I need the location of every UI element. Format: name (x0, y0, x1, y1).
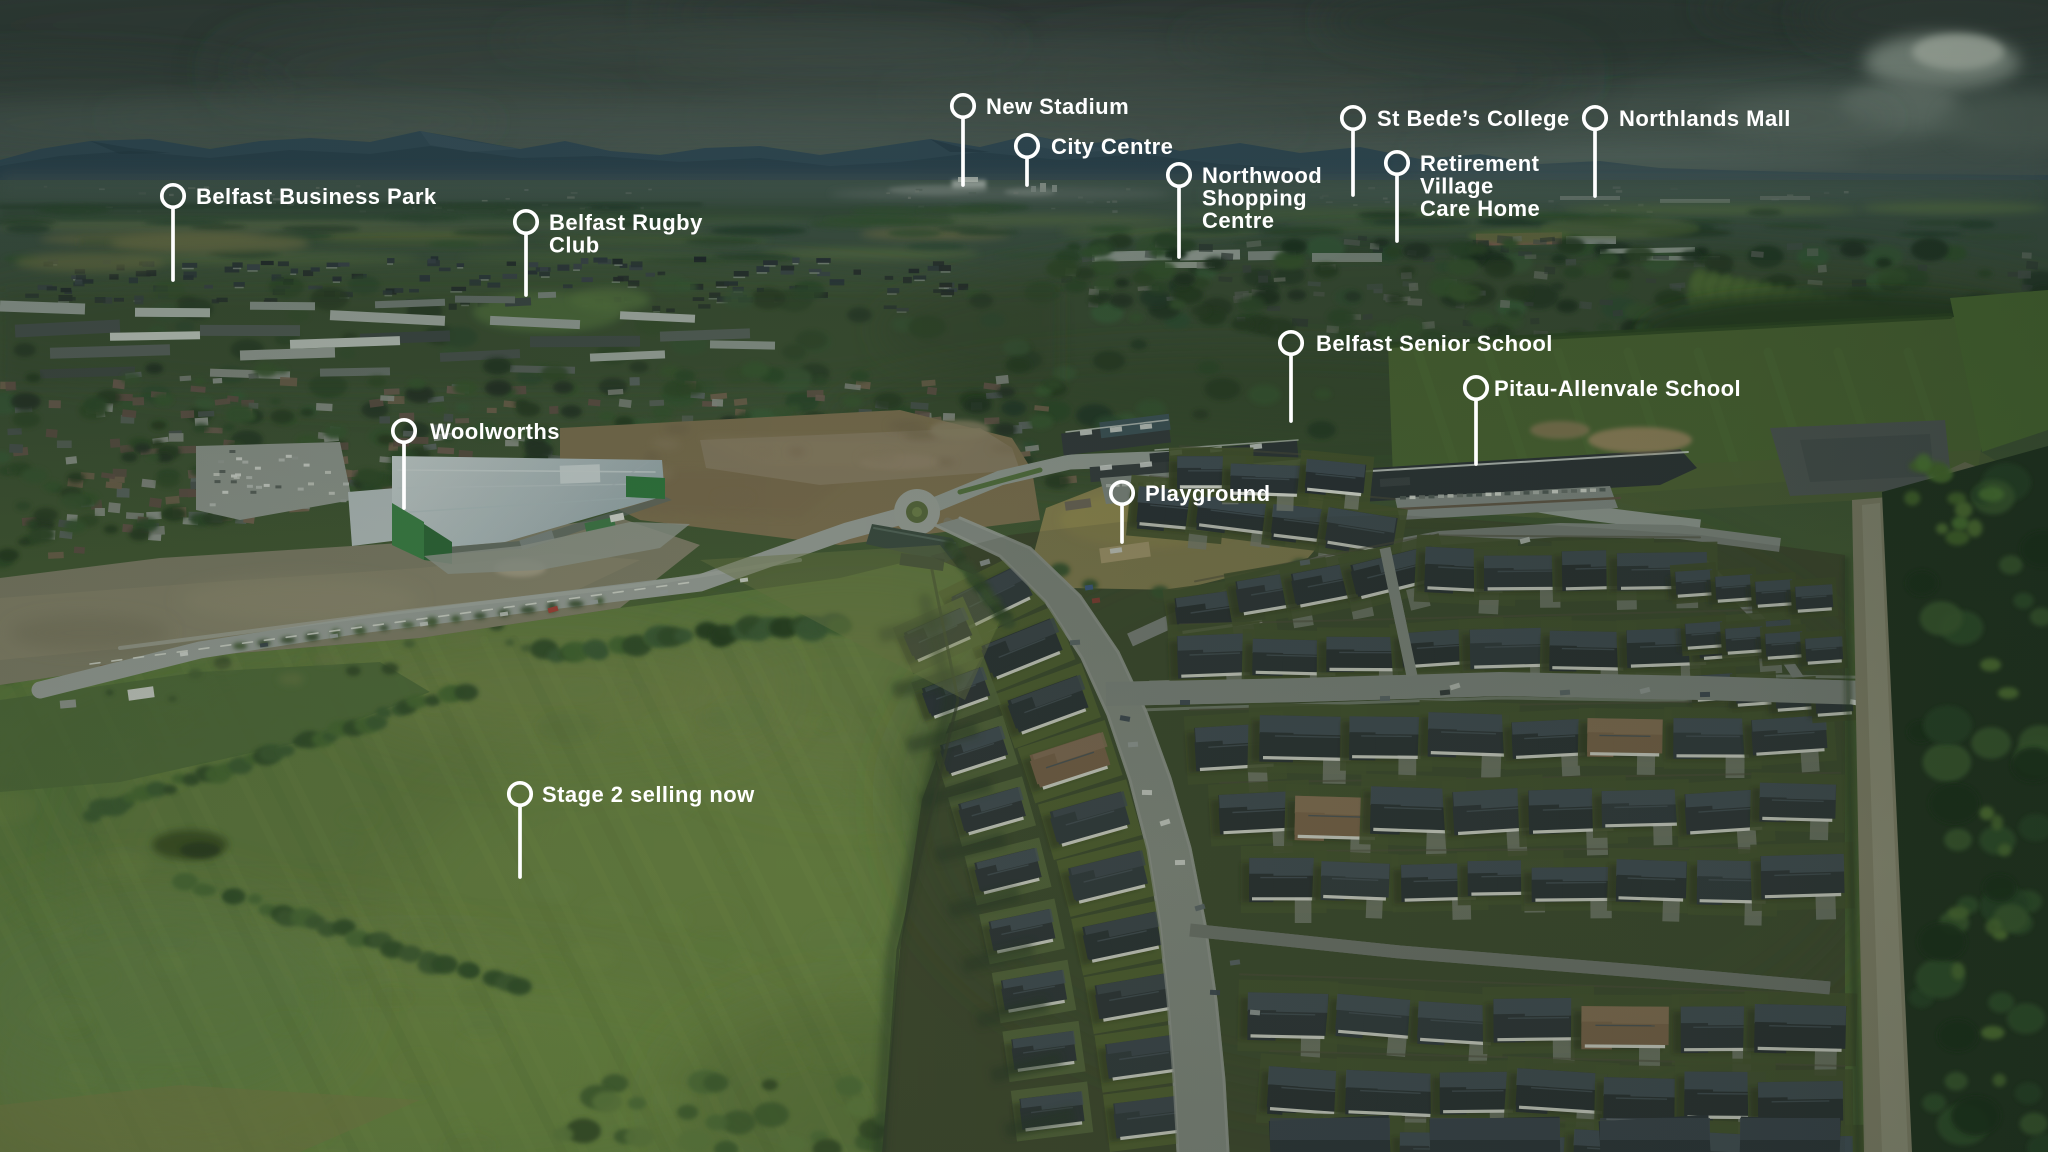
svg-text:Stage 2 selling now: Stage 2 selling now (542, 782, 755, 807)
svg-text:Care Home: Care Home (1420, 196, 1540, 221)
svg-text:Club: Club (549, 233, 600, 258)
svg-text:Northwood: Northwood (1202, 163, 1322, 188)
svg-text:New Stadium: New Stadium (986, 94, 1129, 119)
svg-text:Centre: Centre (1202, 208, 1274, 233)
svg-text:Shopping: Shopping (1202, 186, 1307, 211)
svg-text:Pitau-Allenvale School: Pitau-Allenvale School (1494, 376, 1741, 401)
svg-text:Belfast Rugby: Belfast Rugby (549, 210, 703, 235)
svg-text:Woolworths: Woolworths (430, 419, 560, 444)
svg-text:Playground: Playground (1145, 481, 1271, 506)
svg-text:Village: Village (1420, 174, 1494, 199)
svg-text:Northlands Mall: Northlands Mall (1619, 106, 1791, 131)
svg-text:St Bede’s College: St Bede’s College (1377, 106, 1570, 131)
svg-text:Belfast Senior School: Belfast Senior School (1316, 331, 1553, 356)
svg-text:Belfast Business Park: Belfast Business Park (196, 184, 437, 209)
svg-text:Retirement: Retirement (1420, 151, 1540, 176)
svg-text:City Centre: City Centre (1051, 134, 1173, 159)
